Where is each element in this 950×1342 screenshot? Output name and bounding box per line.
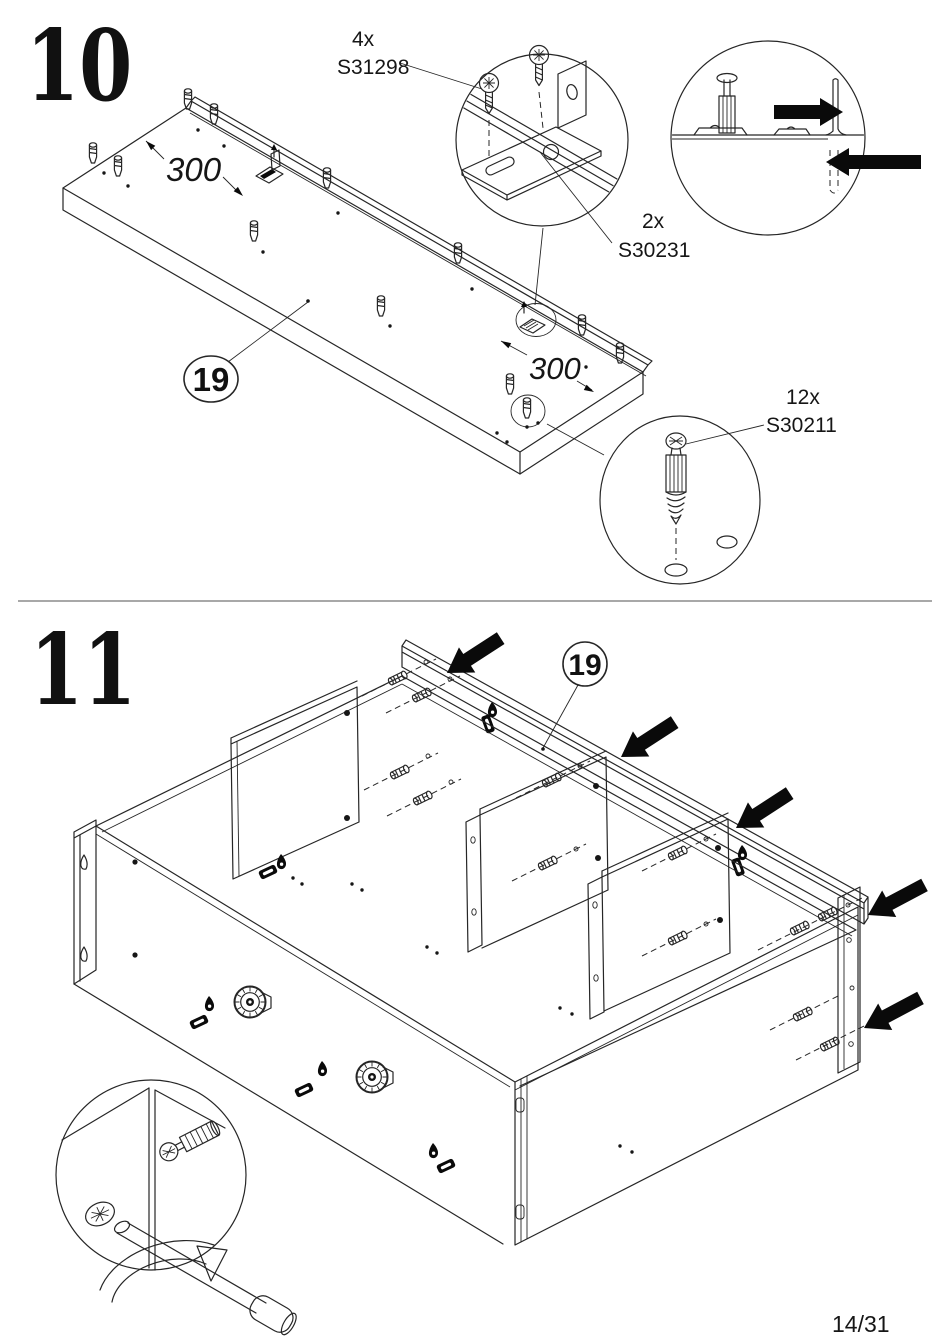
- dowels-and-guides: [362, 659, 866, 1060]
- cabinet-carcass: [74, 676, 860, 1245]
- dimension-back: 300: [146, 141, 243, 196]
- part-bubble-19: 19: [184, 299, 310, 402]
- step-11-diagram: 11 19: [30, 611, 932, 1337]
- qty-s31298: 4x: [352, 28, 375, 51]
- leader-s30211: [686, 425, 764, 444]
- page-number: 14/31: [832, 1311, 890, 1337]
- part-s30231: S30231: [618, 239, 690, 262]
- qty-s30231: 2x: [642, 210, 665, 233]
- callout-dowel-s30211: [547, 416, 760, 584]
- push-arrow-left: [826, 148, 921, 176]
- rail-19: [402, 640, 868, 924]
- leader-s31298: [400, 63, 482, 89]
- bracket-on-edge: [256, 144, 283, 183]
- step-10-diagram: 10: [26, 7, 921, 584]
- qty-s30211: 12x: [786, 386, 820, 409]
- corner-dowel-detail: [511, 395, 545, 429]
- part-bubble-19-label: 19: [193, 361, 230, 398]
- part-s30211: S30211: [766, 414, 837, 437]
- dim-back-label: 300: [166, 151, 222, 188]
- step-11-number: 11: [30, 611, 136, 727]
- callout-bracket-screws: [456, 46, 629, 306]
- detail-dowel-insertion: [56, 1080, 300, 1338]
- instruction-page: 10: [0, 0, 950, 1342]
- dim-front-label: 300: [529, 351, 581, 386]
- part-bubble-19-step11-label: 19: [568, 649, 601, 682]
- leader-s30231: [540, 152, 612, 243]
- callout-edge-flange: [671, 41, 921, 235]
- dimension-front: 300: [501, 341, 594, 392]
- step-10-number: 10: [26, 7, 132, 123]
- page-canvas: 10: [0, 0, 950, 1342]
- part-s31298: S31298: [337, 56, 409, 79]
